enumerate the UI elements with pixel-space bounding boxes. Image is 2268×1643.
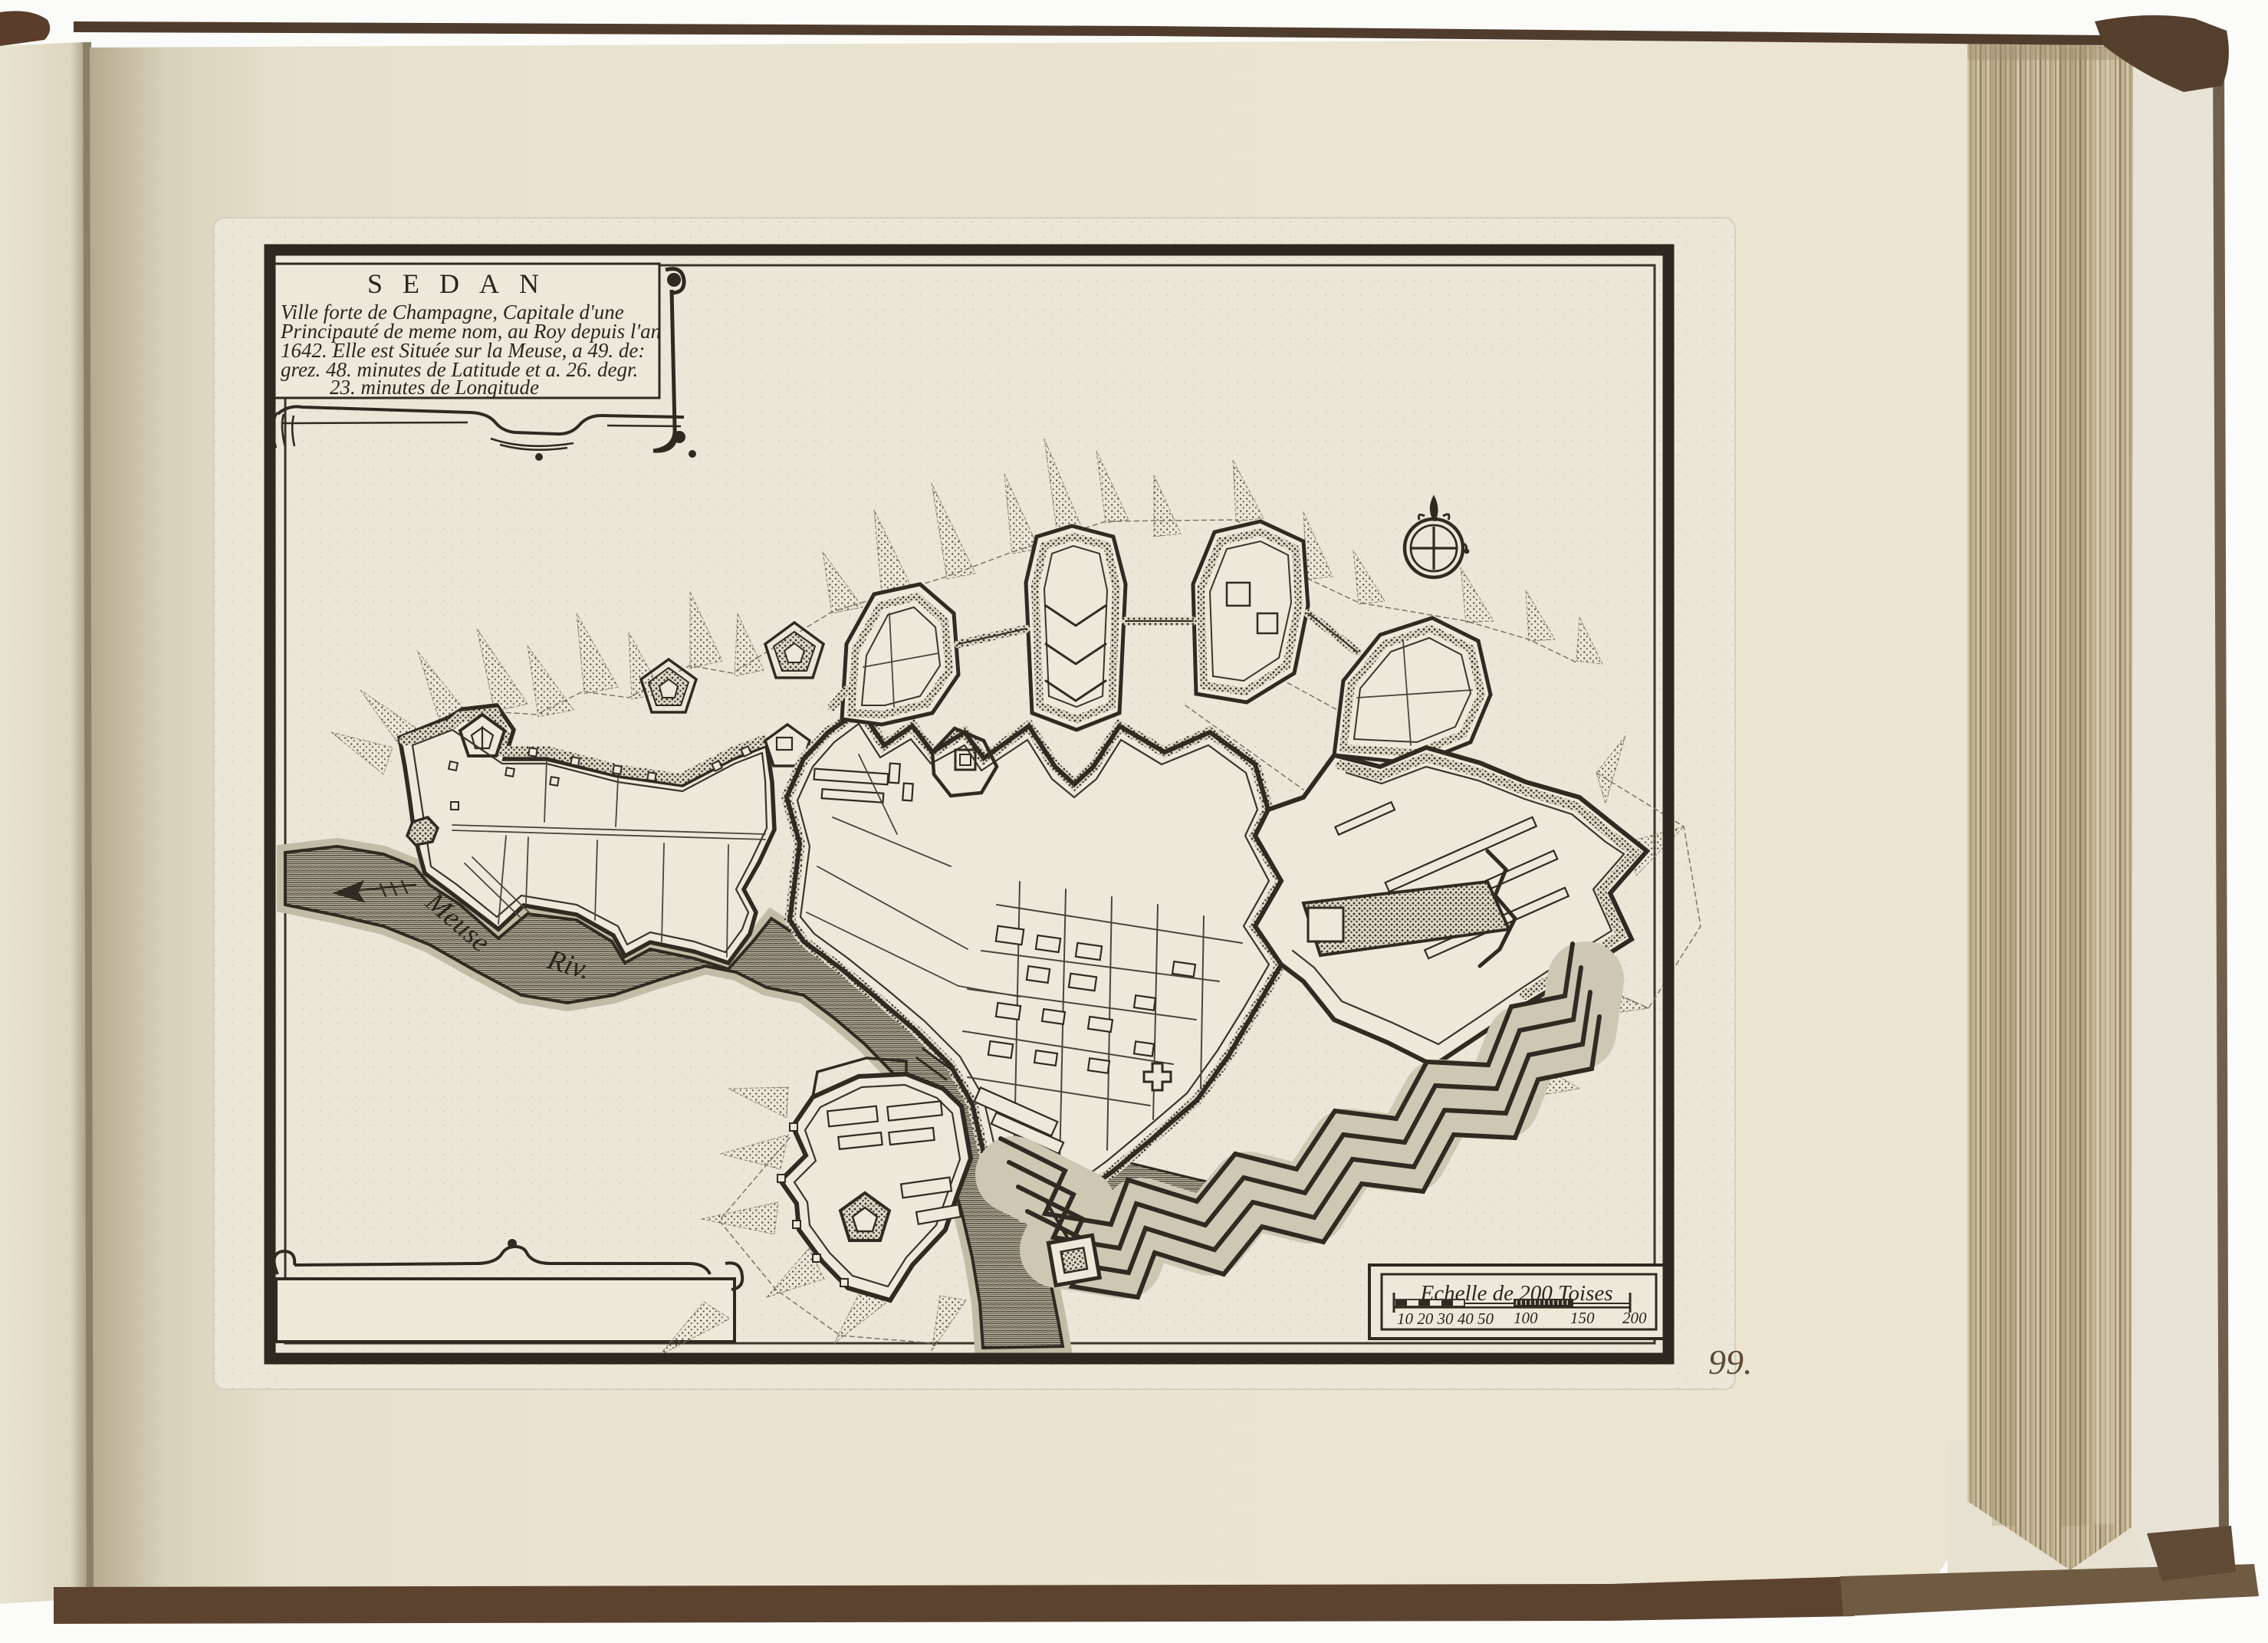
- svg-text:10 20 30 40 50: 10 20 30 40 50: [1397, 1309, 1494, 1328]
- svg-text:200: 200: [1622, 1309, 1647, 1327]
- svg-text:SEDAN: SEDAN: [367, 268, 559, 299]
- svg-text:23. minutes de Longitude: 23. minutes de Longitude: [330, 376, 539, 399]
- svg-text:99.: 99.: [1708, 1342, 1753, 1382]
- svg-text:150: 150: [1570, 1309, 1595, 1327]
- svg-text:100: 100: [1514, 1309, 1538, 1327]
